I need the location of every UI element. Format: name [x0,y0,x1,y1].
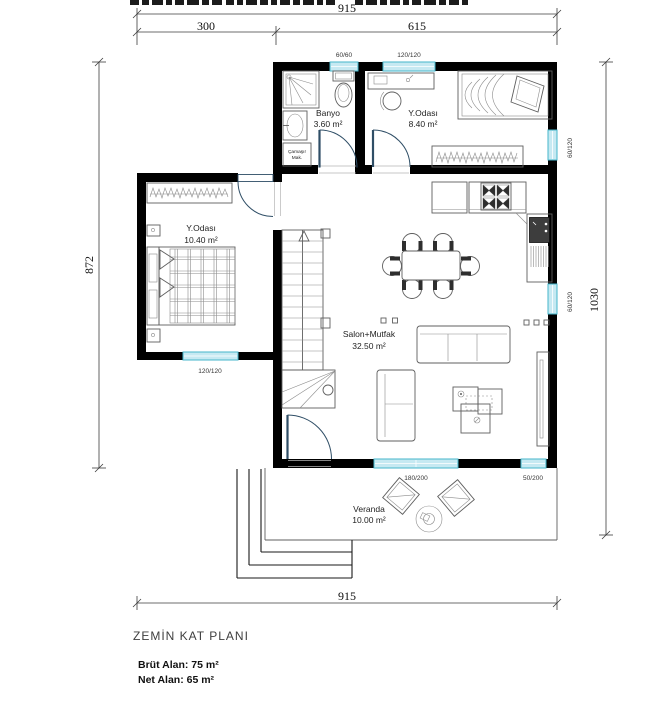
sofa-large [417,326,510,363]
doors [238,130,410,467]
tv-unit [537,352,549,446]
window-bedroom-top: 120/120 [383,52,435,71]
dining-set [383,234,480,299]
floor-plan-page: 915 300 615 872 1030 915 [0,0,647,703]
veranda-chair-1 [383,478,420,515]
dim-right-height: 1030 [587,288,601,312]
window-bedroom-left-bottom: 120/120 [183,352,238,375]
dining-chair [433,234,454,253]
window-bedroom-top-label: 120/120 [397,52,421,59]
dimension-left: 872 [82,58,106,472]
washing-machine: Çamaşır Mak. [283,143,311,166]
window-bath-top: 60/60 [330,52,358,71]
stove [469,182,527,224]
banyo-area: 3.60 m² [314,119,343,129]
salon-area: 32.50 m² [352,341,386,351]
veranda-steps [237,469,352,578]
living-area: Salon+Mutfak 32.50 m² [343,318,549,446]
window-bedroom-left-label: 120/120 [198,368,222,375]
toilet [333,71,354,107]
dining-chair [402,280,423,299]
bathroom-sink [283,111,307,140]
window-salon-large: 180/200 [374,459,458,482]
window-salon-small-label: 50/200 [523,475,543,482]
veranda-label: Veranda [353,504,385,514]
washer-label-line2: Mak. [292,155,302,161]
bedroom-top: Y.Odası 8.40 m² [368,71,552,167]
veranda: Veranda 10.00 m² [237,468,557,578]
sofa-small [377,370,415,441]
windows: 60/60 120/120 60/120 60/120 120/120 180/… [183,52,574,482]
wardrobe-left-bedroom [147,183,232,203]
dining-table [402,251,460,280]
veranda-table [416,506,442,532]
bedroom-top-area: 8.40 m² [409,119,438,129]
window-salon-large-label: 180/200 [404,475,428,482]
window-right-lower: 60/120 [548,284,574,314]
wardrobe-top-bedroom [432,146,523,167]
cropped-header-fragments [130,0,468,5]
double-bed [147,247,235,325]
nightstand-top [147,225,160,236]
dim-top-right-segment: 615 [408,19,426,33]
salon-label: Salon+Mutfak [343,329,396,339]
coffee-tables [453,387,502,433]
dimension-bottom: 915 [133,589,561,610]
window-bath-top-label: 60/60 [336,52,353,59]
bedroom-left: Y.Odası 10.40 m² [147,183,235,342]
dining-chair [402,234,423,253]
window-right-upper-label: 60/120 [567,138,574,158]
veranda-chair-2 [438,480,475,517]
window-right-lower-label: 60/120 [567,292,574,312]
window-salon-small: 50/200 [521,459,546,482]
dim-bottom-total: 915 [338,589,356,603]
dim-left-height: 872 [82,256,96,274]
floor-sockets [381,318,549,325]
walls [137,62,557,468]
dimension-right: 1030 [587,58,613,539]
dim-top-total: 915 [338,1,356,15]
dining-chair [383,257,402,276]
shower [283,71,319,108]
door-entrance [288,415,332,467]
dining-chair [433,280,454,299]
dim-top-left-segment: 300 [197,19,215,33]
veranda-area: 10.00 m² [352,515,386,525]
desk-chair [380,92,401,110]
nightstand-bottom [147,329,160,342]
dining-chair [461,257,480,276]
bedroom-top-label: Y.Odası [408,108,438,118]
staircase [282,229,335,408]
washer-label-line1: Çamaşır [288,149,307,155]
window-right-upper: 60/120 [548,130,574,160]
net-area-text: Net Alan: 65 m² [138,674,215,686]
door-bathroom [319,130,357,173]
kitchen-counter [432,182,467,213]
door-bedroom-top [373,130,410,173]
floor-plan-drawing: 915 300 615 872 1030 915 [0,0,647,703]
bedroom-left-label: Y.Odası [186,223,216,233]
bedroom-left-area: 10.40 m² [184,235,218,245]
gross-area-text: Brüt Alan: 75 m² [138,659,219,671]
plan-title: ZEMİN KAT PLANI [133,629,249,643]
dimension-top: 915 300 615 [133,1,561,45]
banyo-label: Banyo [316,108,340,118]
footer: ZEMİN KAT PLANI Brüt Alan: 75 m² Net Ala… [133,629,249,686]
desk [368,73,434,89]
single-bed [458,71,552,119]
